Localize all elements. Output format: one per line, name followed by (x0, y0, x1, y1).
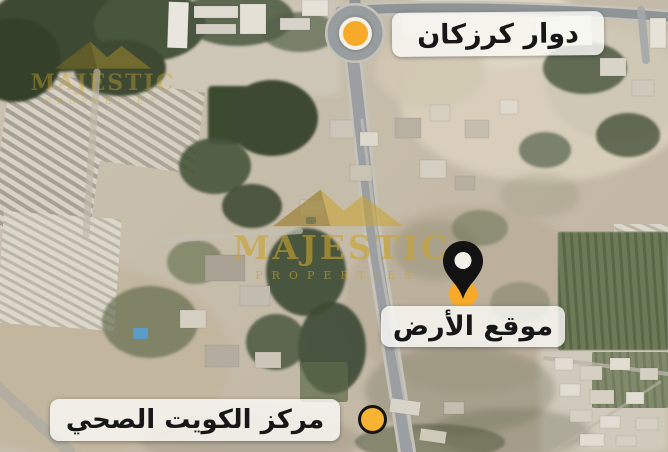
land-site-label: موقع الأرض (381, 306, 565, 347)
health-center-label: مركز الكويت الصحي (50, 399, 340, 441)
land-site-pin-icon (437, 239, 489, 309)
satellite-map (0, 0, 668, 452)
map-screenshot: MAJESTIC PROPERTIES MAJESTIC PROPERTIES … (0, 0, 668, 452)
roundabout-marker-icon (339, 17, 372, 50)
roundabout-label: دوار كرزكان (392, 11, 604, 57)
health-center-marker-icon (358, 405, 387, 434)
